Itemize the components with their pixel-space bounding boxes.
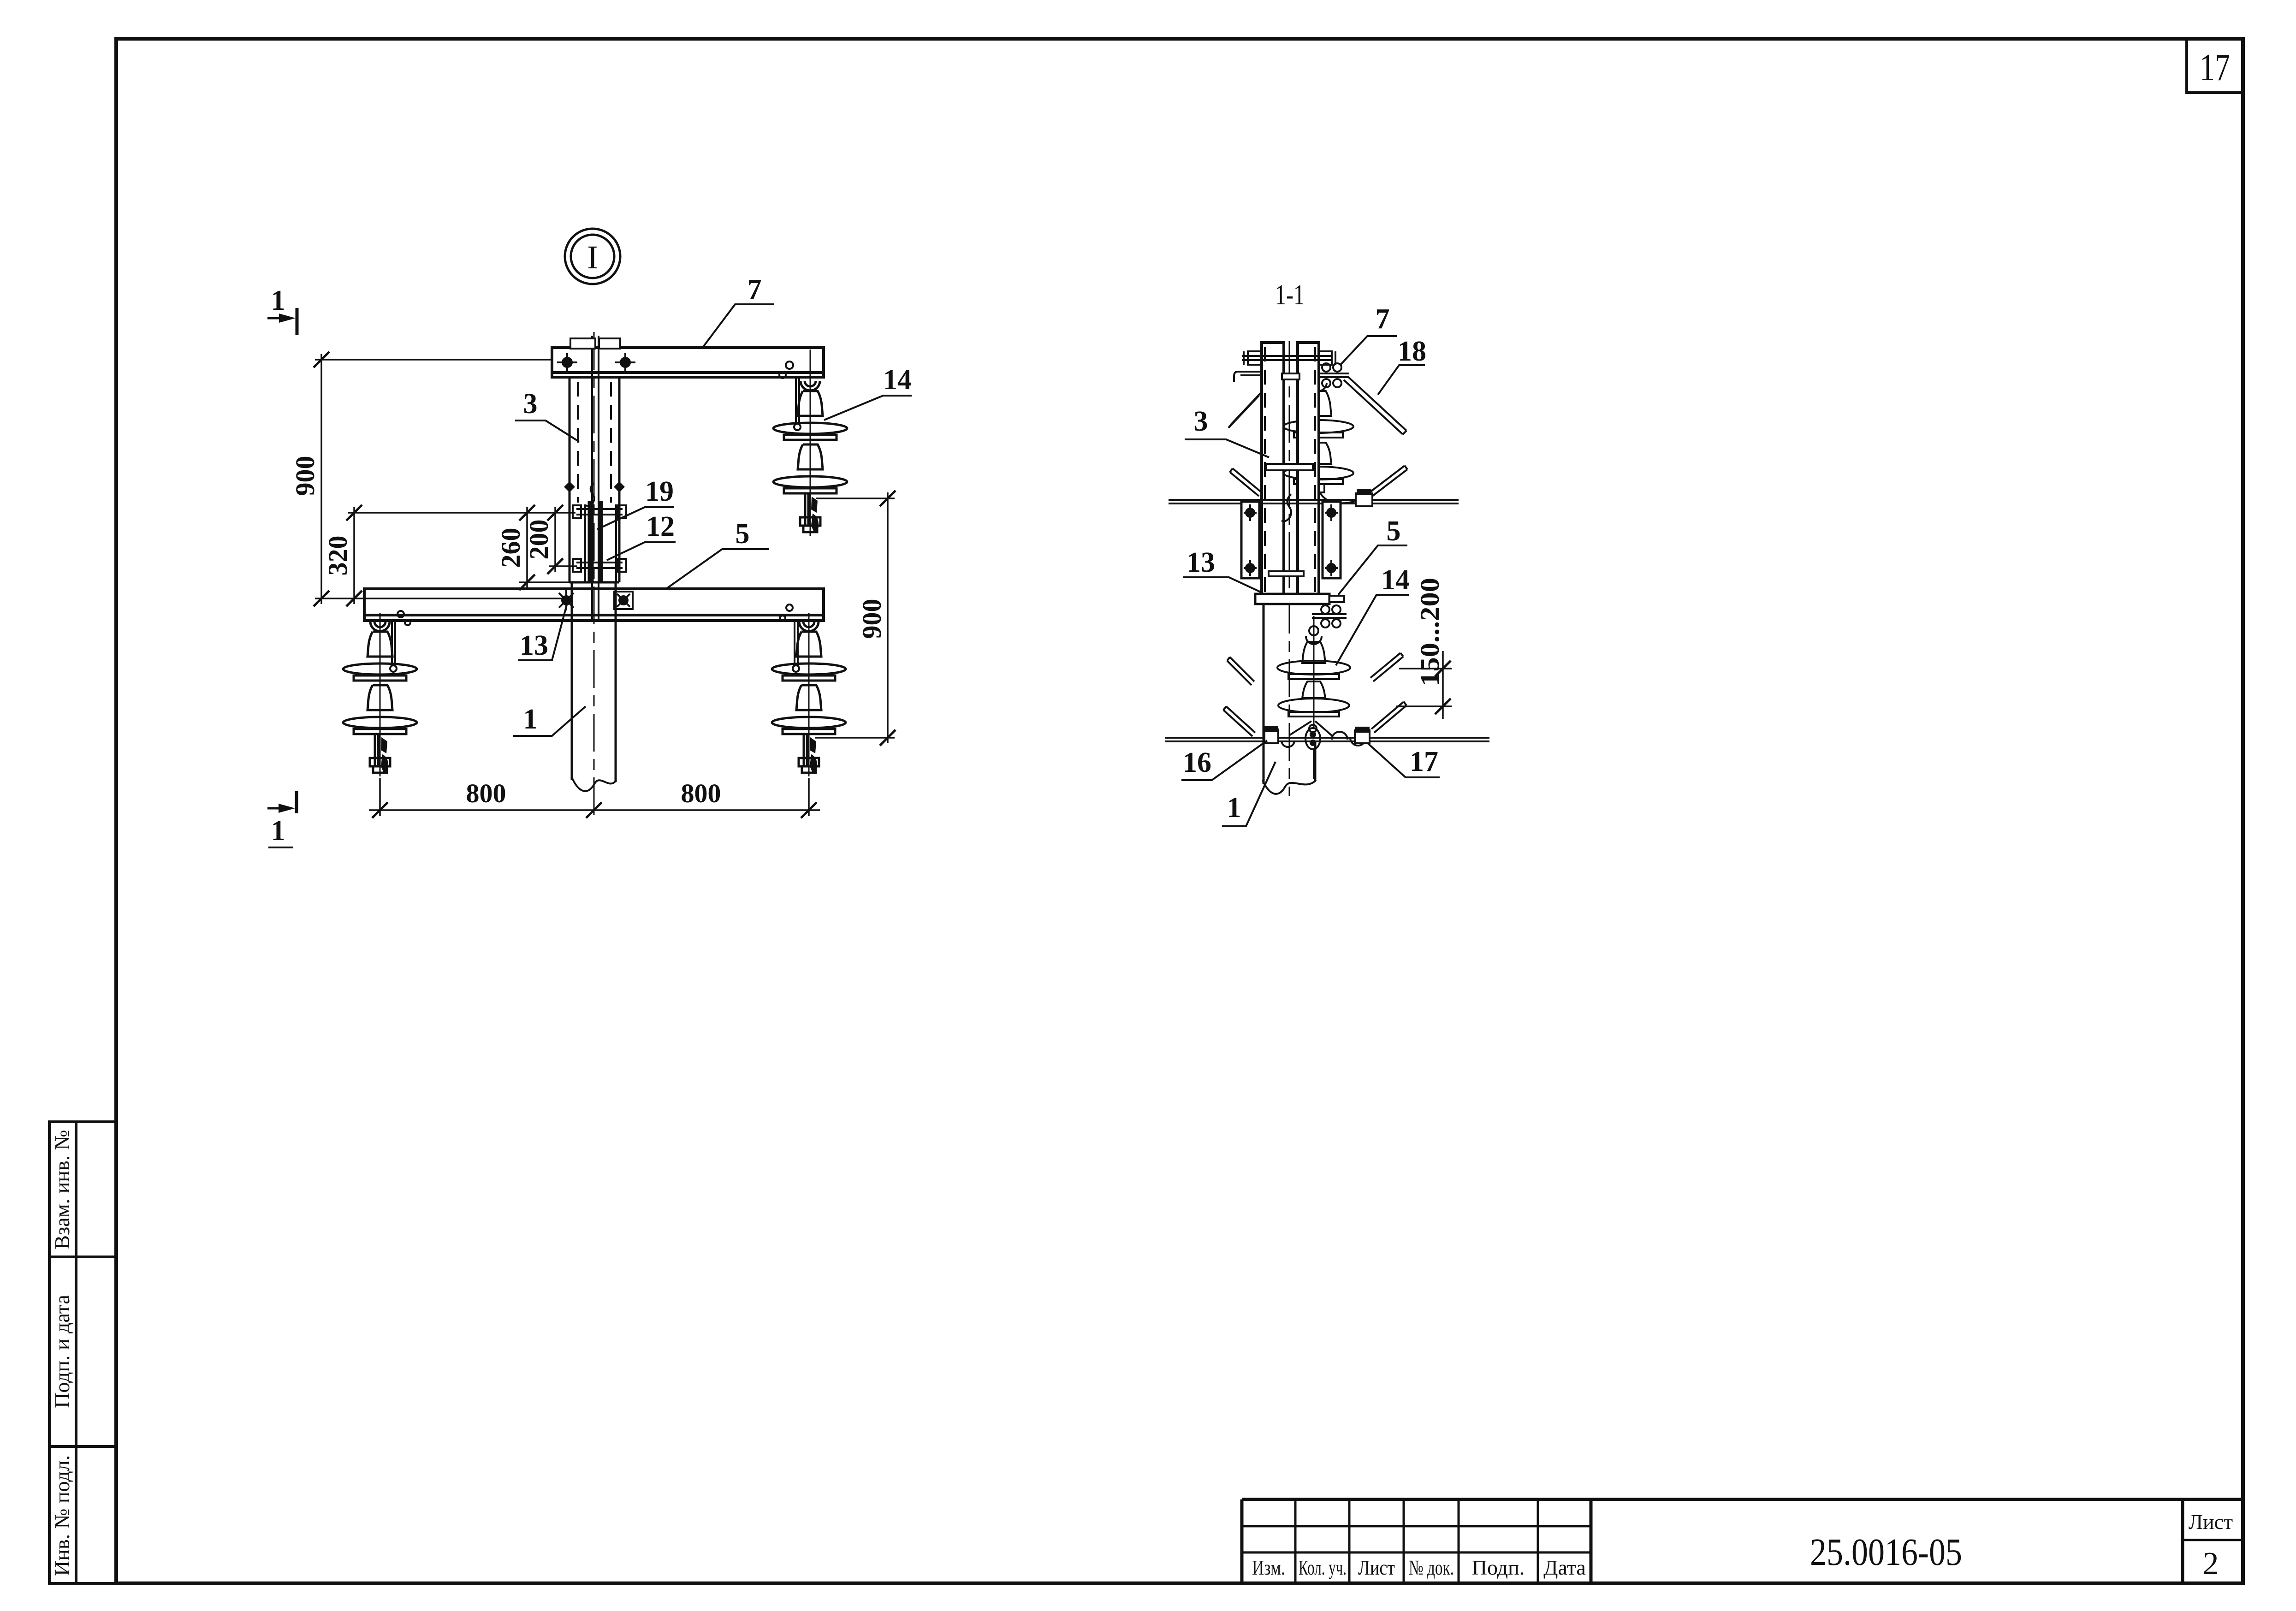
svg-text:13: 13 (520, 630, 548, 661)
svg-text:Лист: Лист (1358, 1556, 1395, 1579)
svg-text:12: 12 (646, 511, 675, 542)
svg-text:800: 800 (466, 778, 506, 808)
svg-text:7: 7 (748, 274, 762, 305)
svg-text:25.0016-05: 25.0016-05 (1810, 1531, 1962, 1574)
svg-text:200: 200 (524, 520, 554, 560)
svg-text:18: 18 (1398, 336, 1426, 367)
svg-text:2: 2 (2203, 1546, 2219, 1581)
svg-text:Инв. № подл.: Инв. № подл. (50, 1455, 74, 1576)
svg-text:Взам. инв. №: Взам. инв. № (50, 1130, 74, 1249)
svg-text:№ док.: № док. (1409, 1556, 1454, 1579)
svg-text:19: 19 (645, 476, 674, 507)
svg-text:260: 260 (496, 528, 526, 568)
svg-text:1: 1 (271, 285, 285, 316)
svg-text:900: 900 (857, 599, 887, 639)
svg-text:1: 1 (1227, 792, 1241, 823)
svg-text:Подп.: Подп. (1472, 1556, 1525, 1579)
svg-text:14: 14 (883, 364, 912, 396)
svg-text:1-1: 1-1 (1275, 279, 1305, 311)
svg-text:16: 16 (1183, 747, 1211, 778)
svg-text:Изм.: Изм. (1252, 1556, 1285, 1579)
svg-text:14: 14 (1381, 564, 1410, 596)
svg-text:1: 1 (523, 704, 538, 735)
svg-text:17: 17 (1410, 746, 1438, 777)
svg-text:150...200: 150...200 (1415, 578, 1445, 686)
svg-text:1: 1 (271, 815, 285, 847)
svg-text:Кол. уч.: Кол. уч. (1299, 1556, 1347, 1579)
svg-text:17: 17 (2200, 46, 2230, 89)
svg-text:Подп. и дата: Подп. и дата (50, 1295, 74, 1408)
svg-text:3: 3 (523, 388, 538, 420)
svg-text:5: 5 (736, 518, 750, 550)
svg-text:800: 800 (681, 778, 721, 808)
svg-text:I: I (587, 239, 598, 276)
svg-text:320: 320 (323, 536, 353, 576)
svg-text:900: 900 (290, 456, 320, 496)
svg-text:13: 13 (1187, 547, 1215, 578)
svg-text:Дата: Дата (1543, 1556, 1586, 1579)
svg-text:5: 5 (1387, 515, 1401, 547)
svg-text:3: 3 (1194, 406, 1208, 437)
svg-text:7: 7 (1376, 303, 1390, 335)
svg-text:Лист: Лист (2189, 1510, 2233, 1534)
